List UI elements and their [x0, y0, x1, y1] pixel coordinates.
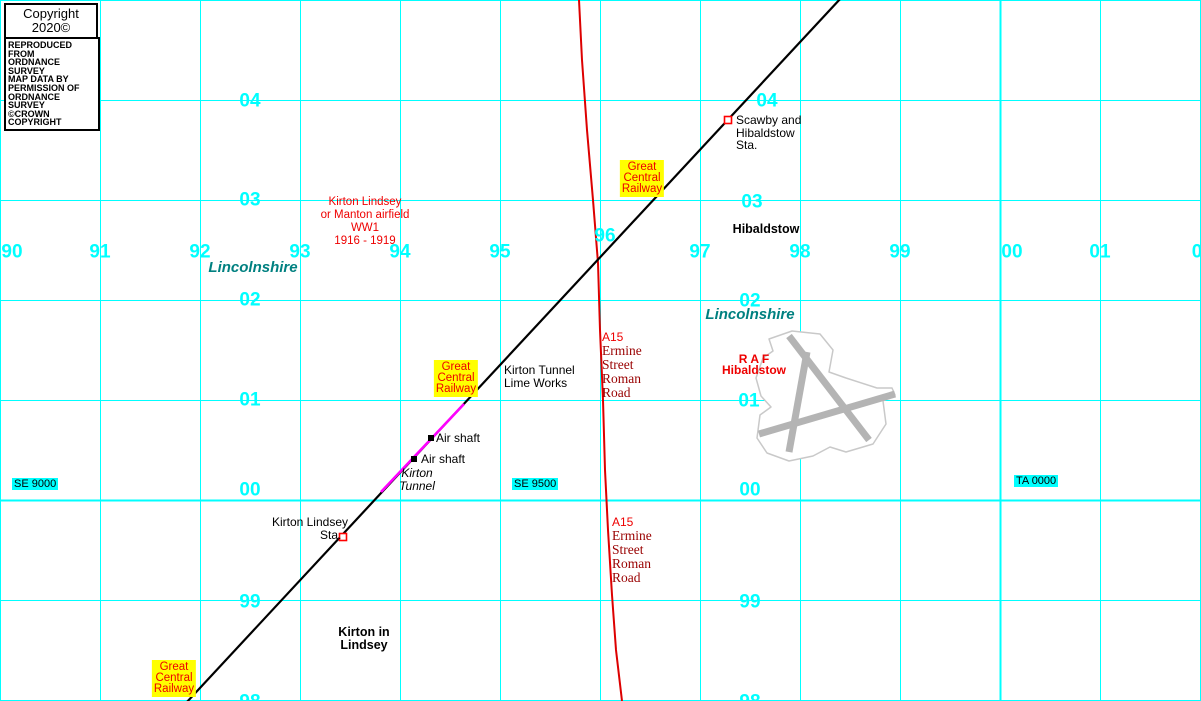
map-canvas: 9091929394959697989900010040302010099980… [0, 0, 1201, 701]
os-attribution-box: REPRODUCED FROM ORDNANCE SURVEY MAP DATA… [4, 37, 100, 131]
map-vector-layer [0, 0, 1201, 701]
attribution-line: ORDNANCE SURVEY [8, 93, 97, 110]
air-shaft-marker-icon [411, 456, 417, 462]
attribution-line: ©CROWN COPYRIGHT [8, 110, 97, 127]
air-shaft-marker-icon [428, 435, 434, 441]
scawby-station-marker-icon [725, 117, 732, 124]
airfield-perimeter-outline [756, 331, 895, 461]
attribution-line: ORDNANCE SURVEY [8, 58, 97, 75]
copyright-line: Copyright 2020© [6, 7, 96, 35]
attribution-line: REPRODUCED FROM [8, 41, 97, 58]
kirton-tunnel-segment [381, 404, 464, 492]
railway-line [186, 0, 841, 701]
raf-hibaldstow-airfield [756, 331, 895, 461]
kirton-lindsey-station-marker-icon [340, 534, 347, 541]
